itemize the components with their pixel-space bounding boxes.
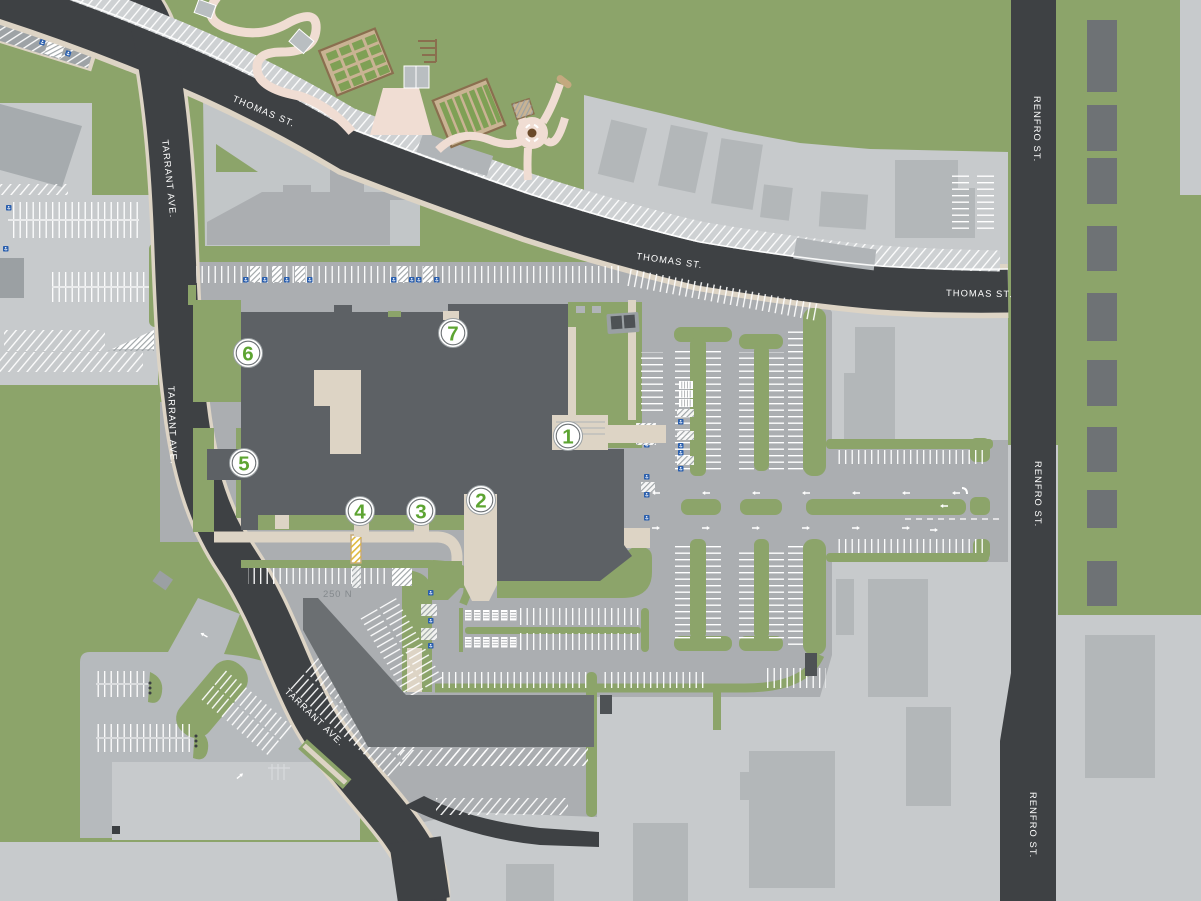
svg-text:RENFRO ST.: RENFRO ST. — [1028, 792, 1038, 858]
svg-text:2: 2 — [475, 489, 486, 512]
svg-text:3: 3 — [415, 500, 426, 523]
svg-text:7: 7 — [447, 322, 458, 345]
svg-text:5: 5 — [238, 452, 249, 475]
svg-text:THOMAS ST.: THOMAS ST. — [946, 288, 1013, 299]
svg-text:1: 1 — [562, 425, 573, 448]
svg-text:250 N: 250 N — [323, 589, 352, 600]
svg-text:RENFRO ST.: RENFRO ST. — [1033, 461, 1043, 527]
svg-text:RENFRO ST.: RENFRO ST. — [1032, 96, 1042, 162]
svg-text:6: 6 — [242, 342, 253, 365]
svg-text:4: 4 — [354, 500, 366, 523]
